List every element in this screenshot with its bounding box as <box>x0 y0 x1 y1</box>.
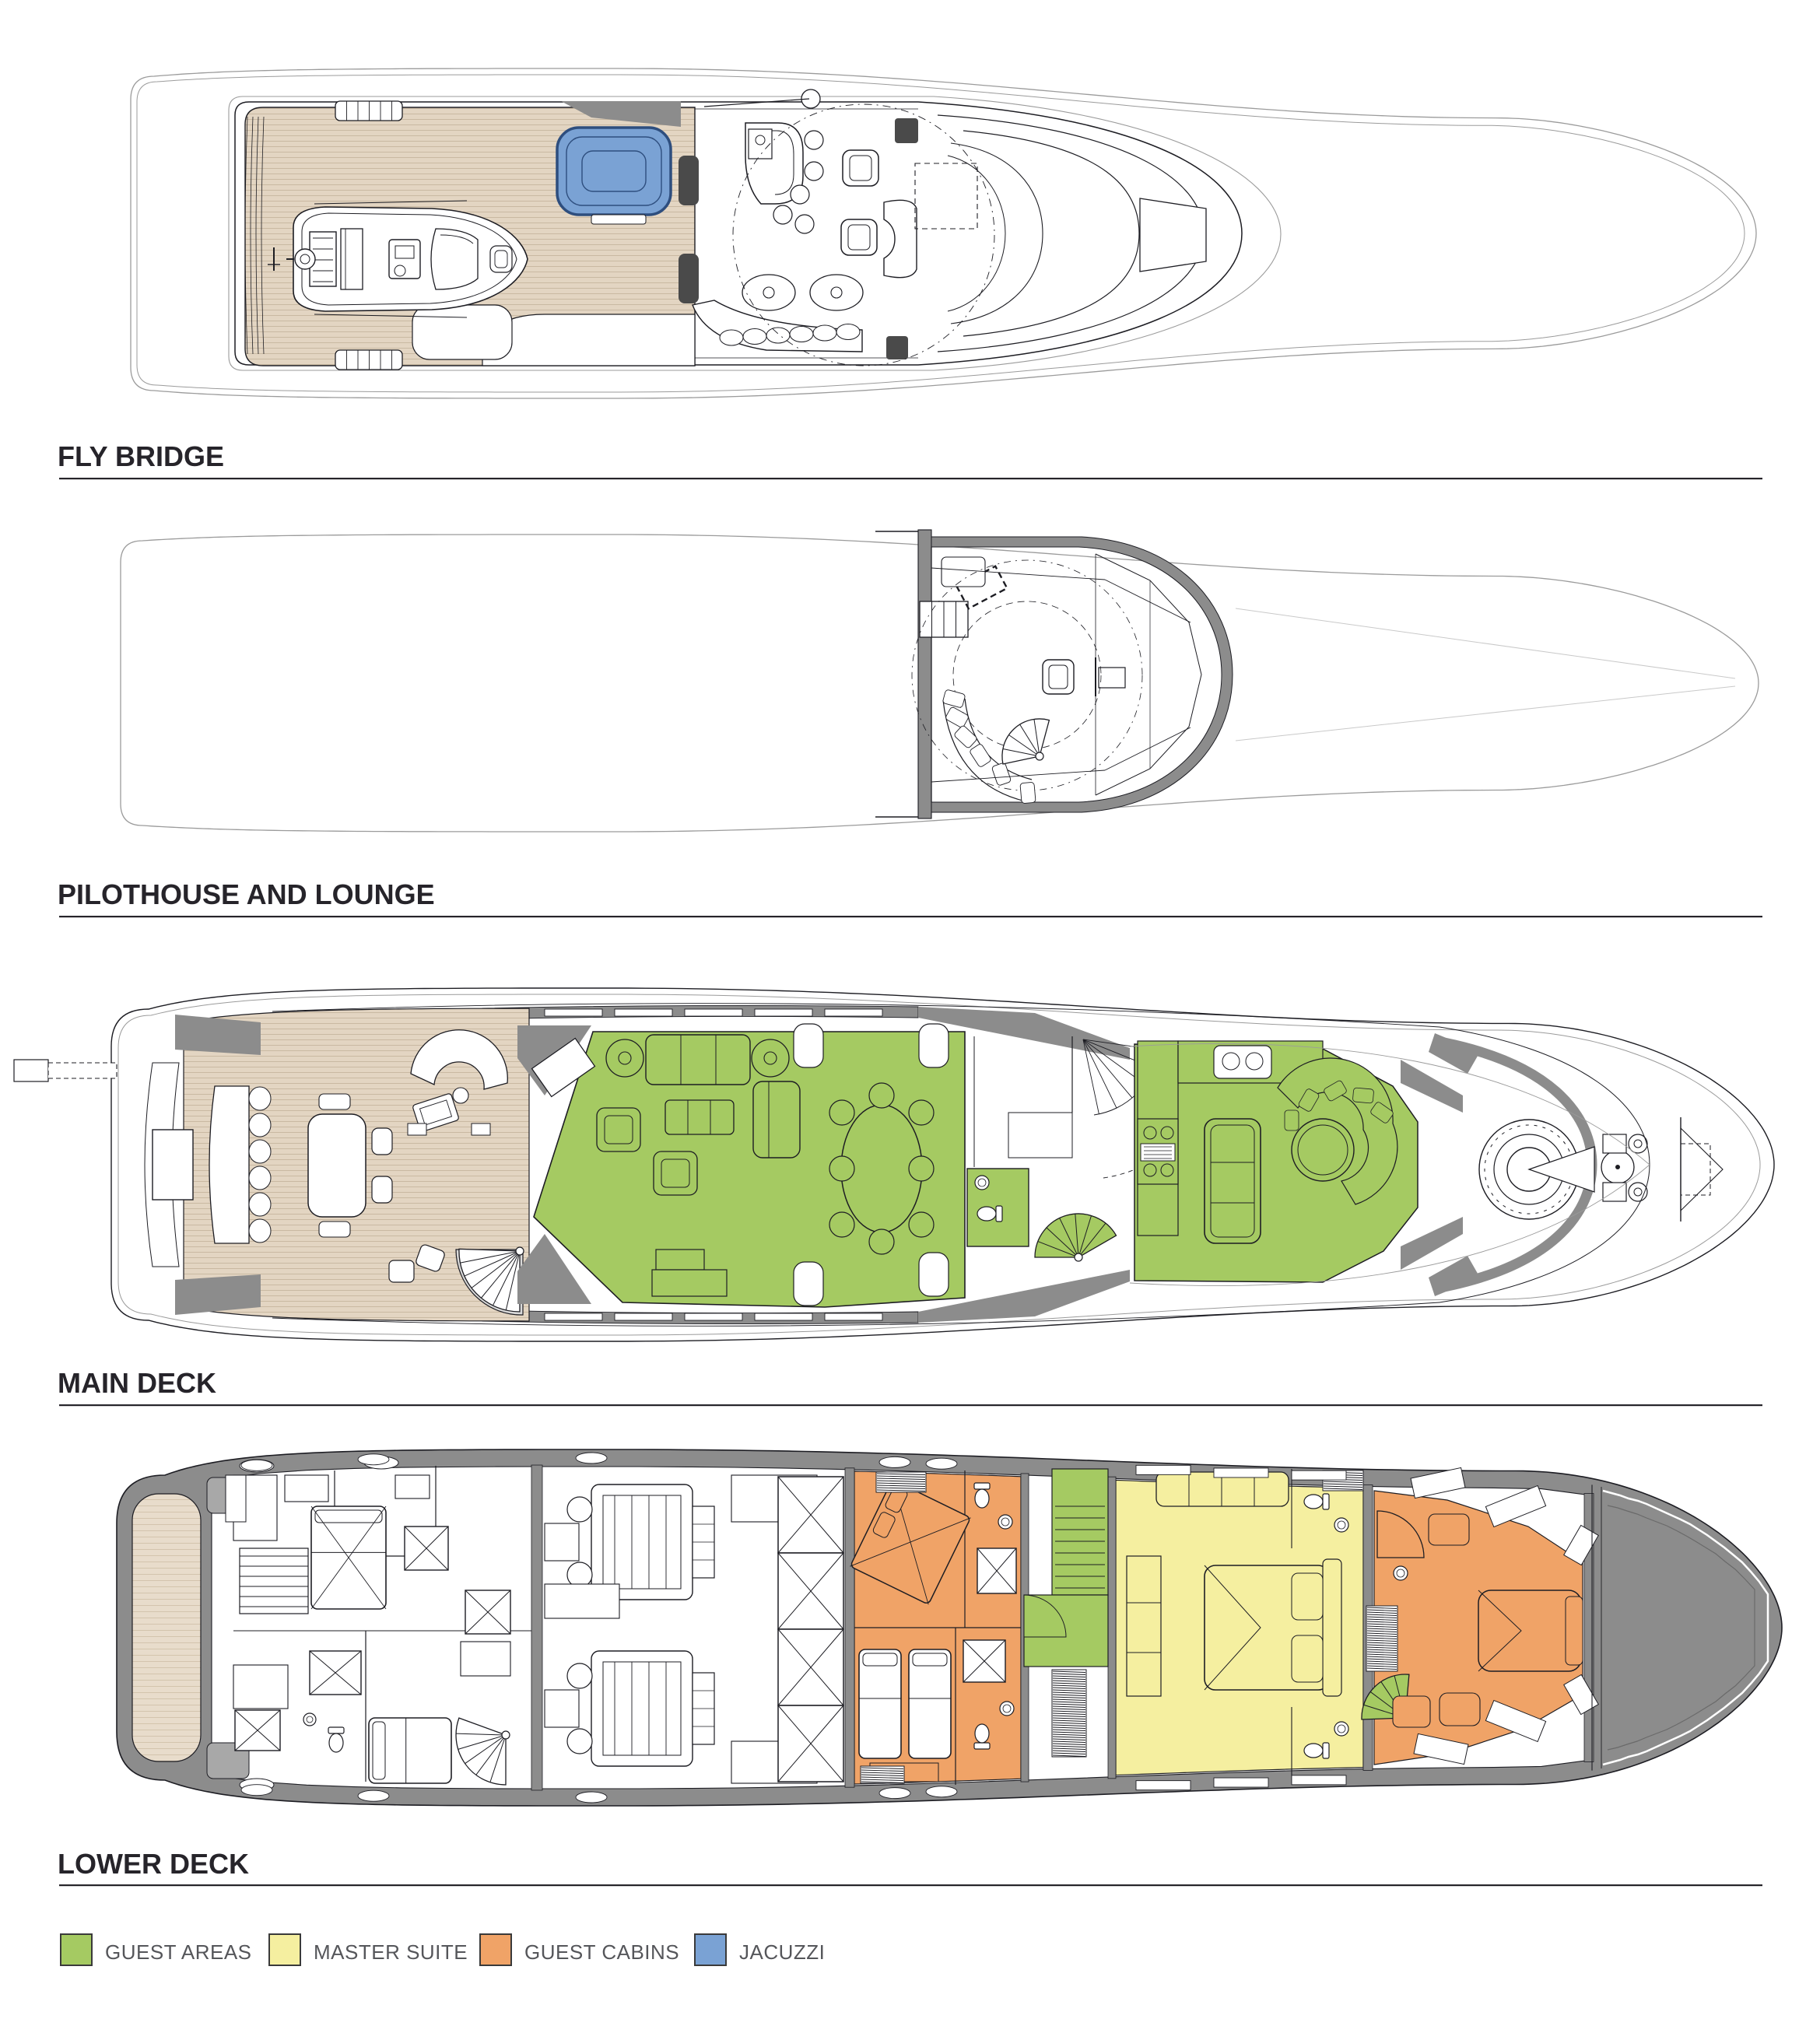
svg-text:GUEST CABINS: GUEST CABINS <box>524 1940 679 1964</box>
svg-text:JACUZZI: JACUZZI <box>739 1940 825 1964</box>
svg-text:LOWER DECK: LOWER DECK <box>58 1848 249 1880</box>
svg-text:GUEST AREAS: GUEST AREAS <box>105 1940 252 1964</box>
svg-text:PILOTHOUSE AND LOUNGE: PILOTHOUSE AND LOUNGE <box>58 878 435 910</box>
svg-text:MAIN DECK: MAIN DECK <box>58 1367 216 1399</box>
svg-text:MASTER SUITE: MASTER SUITE <box>314 1940 468 1964</box>
svg-text:FLY BRIDGE: FLY BRIDGE <box>58 440 224 472</box>
